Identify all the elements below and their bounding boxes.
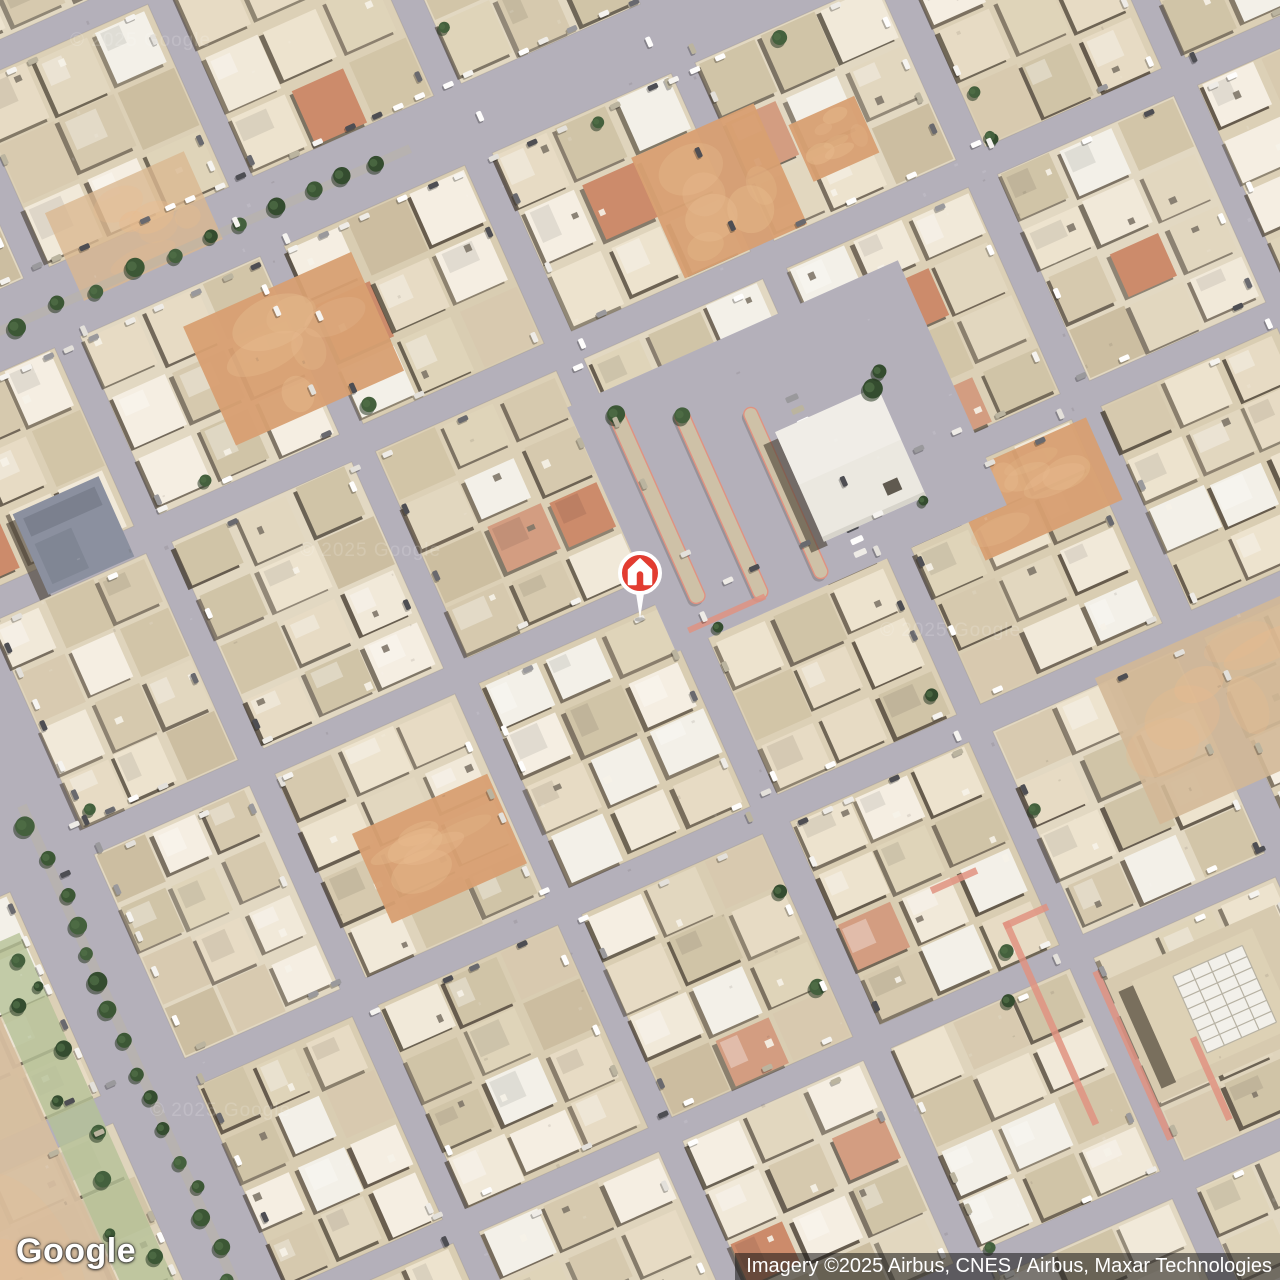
- google-logo[interactable]: Google: [16, 1232, 136, 1271]
- map-attribution: Imagery ©2025 Airbus, CNES / Airbus, Max…: [735, 1253, 1280, 1280]
- location-marker-pin[interactable]: [595, 528, 685, 628]
- satellite-imagery: [0, 0, 1280, 1280]
- map-canvas[interactable]: © 2025 Google © 2025 Google © 2025 Googl…: [0, 0, 1280, 1280]
- attribution-text: Imagery ©2025 Airbus, CNES / Airbus, Max…: [746, 1255, 1272, 1278]
